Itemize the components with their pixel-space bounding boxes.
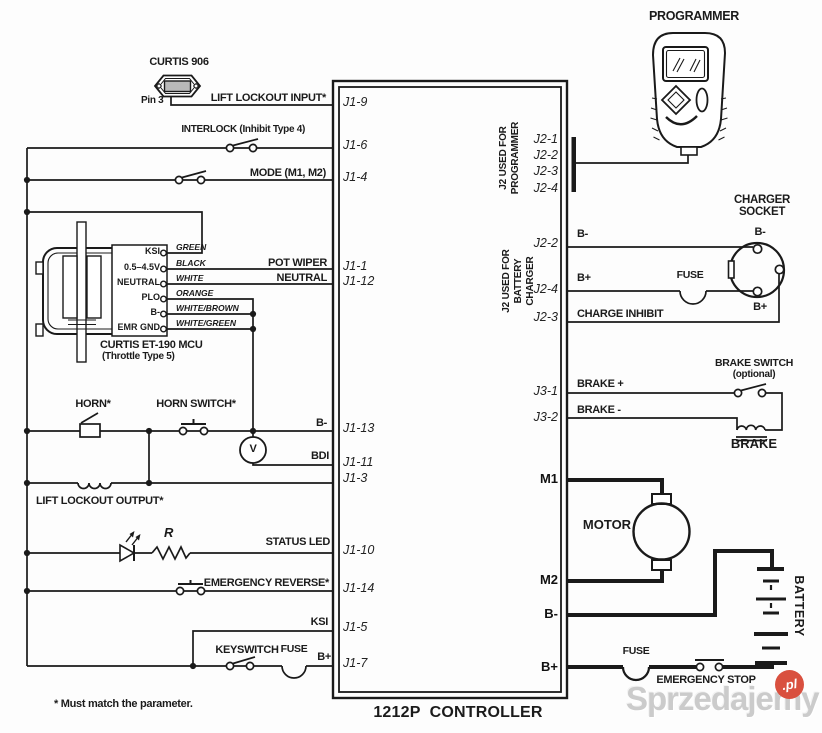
lift-lockout-input-label: LIFT LOCKOUT INPUT* [176, 92, 326, 104]
throttle-pin-bminus: B- [100, 308, 160, 317]
throttle-subtitle: (Throttle Type 5) [102, 351, 175, 362]
horn-switch-label: HORN SWITCH* [136, 398, 256, 410]
pin-j1-6: J1-6 [343, 139, 367, 152]
horn-label: HORN* [63, 398, 123, 410]
pin-j3-1: J3-1 [500, 385, 558, 398]
led-icon [120, 531, 141, 561]
footnote: * Must match the parameter. [54, 698, 193, 710]
brake-switch-note: (optional) [694, 369, 814, 380]
b-minus-label: B- [177, 417, 327, 429]
socket-b-plus-label: B+ [748, 301, 772, 313]
throttle-pin-ksi: KSI [100, 247, 160, 256]
resistor-label: R [164, 526, 173, 540]
pin-j1-1: J1-1 [343, 260, 367, 273]
throttle-pin-emrgnd: EMR GND [100, 323, 160, 332]
wire-color-whitebrown: WHITE/BROWN [176, 304, 239, 313]
interlock-label: INTERLOCK (Inhibit Type 4) [150, 124, 305, 135]
terminal-b-minus-label: B- [500, 607, 558, 620]
wire-color-white: WHITE [176, 274, 203, 283]
signal-wires [27, 96, 782, 678]
watermark-badge: .pl [775, 670, 804, 699]
charger-b-plus-label: B+ [577, 272, 591, 284]
curtis906-pin3-label: Pin 3 [141, 95, 163, 106]
pin-j2-2-prog: J2-2 [500, 149, 558, 162]
wire-color-whitegreen: WHITE/GREEN [176, 319, 236, 328]
b-plus-label: B+ [181, 651, 331, 663]
throttle-pin-neutral: NEUTRAL [100, 278, 160, 287]
charger-fuse-label: FUSE [660, 270, 720, 282]
terminal-b-plus-label: B+ [500, 660, 558, 673]
wiring-diagram: CURTIS 906 Pin 3 LIFT LOCKOUT INPUT* INT… [0, 0, 822, 733]
horn-icon [80, 413, 100, 437]
pin-j1-10: J1-10 [343, 544, 374, 557]
terminal-m1-label: M1 [500, 472, 558, 485]
brake-plus-label: BRAKE + [577, 378, 624, 390]
pin-j3-2: J3-2 [500, 411, 558, 424]
pin-j2-3-prog: J2-3 [500, 165, 558, 178]
pin-j2-3-chg: J2-3 [500, 311, 558, 324]
pin-j1-13: J1-13 [343, 422, 374, 435]
pin-j1-14: J1-14 [343, 582, 374, 595]
throttle-pin-voltage: 0.5–4.5V [100, 263, 160, 272]
voltmeter-label: V [246, 443, 260, 455]
j2-connector-bar [572, 137, 577, 192]
wire-color-black: BLACK [176, 259, 206, 268]
pin-j2-4-chg: J2-4 [500, 283, 558, 296]
pin-j1-7: J1-7 [343, 657, 367, 670]
pin-j1-9: J1-9 [343, 96, 367, 109]
terminal-m2-label: M2 [500, 573, 558, 586]
curtis906-title: CURTIS 906 [129, 56, 229, 68]
brake-switch-title: BRAKE SWITCH [694, 358, 814, 370]
fuse-right-label: FUSE [606, 646, 666, 658]
charge-inhibit-label: CHARGE INHIBIT [577, 308, 663, 320]
programmer-title: PROGRAMMER [624, 10, 764, 24]
watermark-tld: .pl [781, 676, 798, 693]
status-led-label: STATUS LED [180, 536, 330, 548]
pin-j1-3: J1-3 [343, 472, 367, 485]
pin-j1-5: J1-5 [343, 621, 367, 634]
pin-j1-12: J1-12 [343, 275, 374, 288]
socket-b-minus-label: B- [748, 226, 772, 238]
pin-j1-11: J1-11 [343, 456, 373, 469]
throttle-title: CURTIS ET-190 MCU [100, 339, 202, 351]
throttle-pin-plo: PLO [100, 293, 160, 302]
brake-coil-label: BRAKE [704, 437, 804, 451]
motor-label: MOTOR [557, 518, 657, 532]
pin-j2-2-chg: J2-2 [500, 237, 558, 250]
pin-j1-4: J1-4 [343, 171, 367, 184]
wire-color-orange: ORANGE [176, 289, 213, 298]
charger-socket-title: CHARGER SOCKET [712, 194, 812, 218]
programmer-device-icon [651, 33, 728, 155]
brake-minus-label: BRAKE - [577, 404, 621, 416]
mode-label: MODE (M1, M2) [176, 167, 326, 179]
controller-title: 1212P CONTROLLER [338, 704, 578, 722]
pin-j2-4-prog: J2-4 [500, 182, 558, 195]
battery-label: BATTERY [792, 568, 806, 644]
charger-socket-icon [729, 243, 785, 297]
charger-b-minus-label: B- [577, 228, 588, 240]
pin-j2-1: J2-1 [500, 133, 558, 146]
power-wires [567, 480, 772, 667]
ksi-label: KSI [178, 616, 328, 628]
emergency-reverse-label: EMERGENCY REVERSE* [179, 577, 329, 589]
battery-symbol [754, 569, 788, 663]
lift-lockout-output-label: LIFT LOCKOUT OUTPUT* [36, 495, 163, 507]
wire-color-green: GREEN [176, 243, 206, 252]
